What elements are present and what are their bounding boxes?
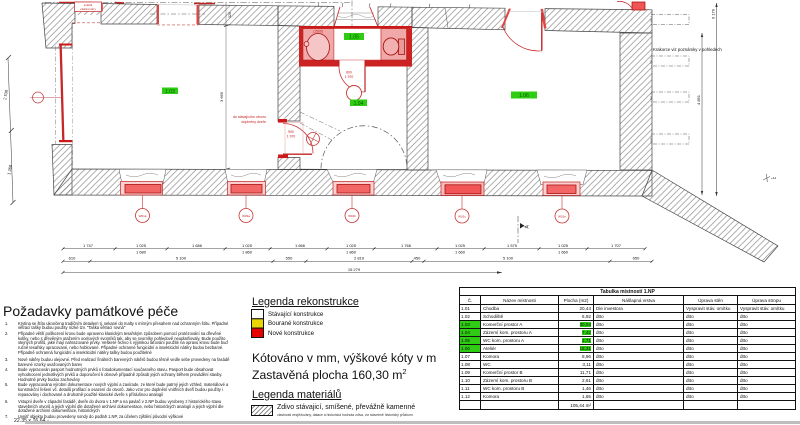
svg-text:1 766: 1 766: [401, 243, 412, 248]
svg-text:610: 610: [69, 256, 76, 261]
svg-text:800: 800: [346, 71, 352, 75]
svg-text:650: 650: [633, 256, 640, 261]
svg-text:1 970: 1 970: [345, 75, 354, 79]
svg-text:1 970: 1 970: [287, 134, 296, 138]
svg-text:1 680: 1 680: [136, 250, 147, 255]
svg-text:W01c: W01c: [458, 215, 466, 219]
svg-text:1 025: 1 025: [455, 243, 466, 248]
svg-text:2 819: 2 819: [354, 256, 365, 261]
svg-text:1 707: 1 707: [611, 243, 622, 248]
svg-text:1 686: 1 686: [192, 243, 203, 248]
svg-text:1 025: 1 025: [558, 243, 569, 248]
svg-text:1 025: 1 025: [346, 243, 357, 248]
svg-text:do stávajícího otvoru: do stávajícího otvoru: [233, 115, 266, 119]
svg-text:(1500): (1500): [313, 30, 323, 34]
svg-text:1 660: 1 660: [558, 250, 569, 255]
svg-text:9 179: 9 179: [711, 8, 716, 19]
svg-text:15 279: 15 279: [348, 267, 361, 272]
svg-text:1 575: 1 575: [507, 243, 518, 248]
svg-text:W03a: W03a: [242, 214, 250, 218]
svg-text:1 860: 1 860: [242, 250, 253, 255]
svg-text:doplněny dveře: doplněny dveře: [241, 120, 266, 124]
svg-text:2 530: 2 530: [2, 89, 9, 100]
svg-text:5 100: 5 100: [503, 256, 514, 261]
svg-text:Krakorce viz poznámky v pohled: Krakorce viz poznámky v pohledech: [653, 47, 722, 52]
svg-text:1.04: 1.04: [354, 101, 364, 107]
svg-text:1.03: 1.03: [165, 89, 175, 95]
svg-text:elektroměry: elektroměry: [80, 7, 96, 11]
svg-text:1 666: 1 666: [295, 243, 306, 248]
svg-text:A: A: [525, 225, 531, 229]
svg-text:1 025: 1 025: [136, 243, 147, 248]
svg-text:1 660: 1 660: [455, 250, 466, 255]
svg-text:320: 320: [228, 12, 232, 18]
svg-text:W01a: W01a: [139, 214, 147, 218]
svg-text:W01b: W01b: [348, 214, 356, 218]
svg-text:5 100: 5 100: [176, 256, 187, 261]
svg-text:4 851: 4 851: [696, 94, 701, 105]
svg-text:W01e: W01e: [558, 215, 566, 219]
svg-text:1.05: 1.05: [349, 35, 359, 41]
svg-text:550: 550: [286, 256, 293, 261]
svg-text:3 669: 3 669: [219, 91, 224, 102]
svg-text:+14: +14: [771, 176, 776, 180]
svg-text:1 860: 1 860: [346, 250, 357, 255]
svg-text:1 747: 1 747: [83, 243, 94, 248]
svg-text:450: 450: [414, 256, 421, 261]
svg-text:1.06: 1.06: [519, 93, 529, 99]
svg-text:1 025: 1 025: [242, 243, 253, 248]
